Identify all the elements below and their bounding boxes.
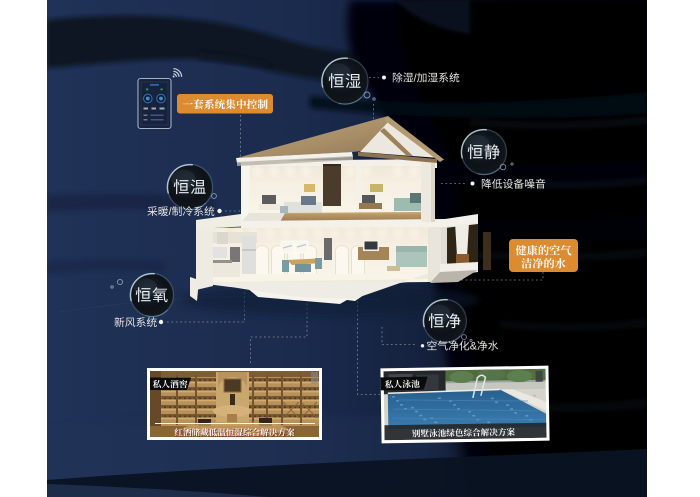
svg-text:&: & (470, 341, 478, 353)
svg-text:/: / (414, 73, 417, 85)
svg-text:/: / (169, 206, 172, 218)
